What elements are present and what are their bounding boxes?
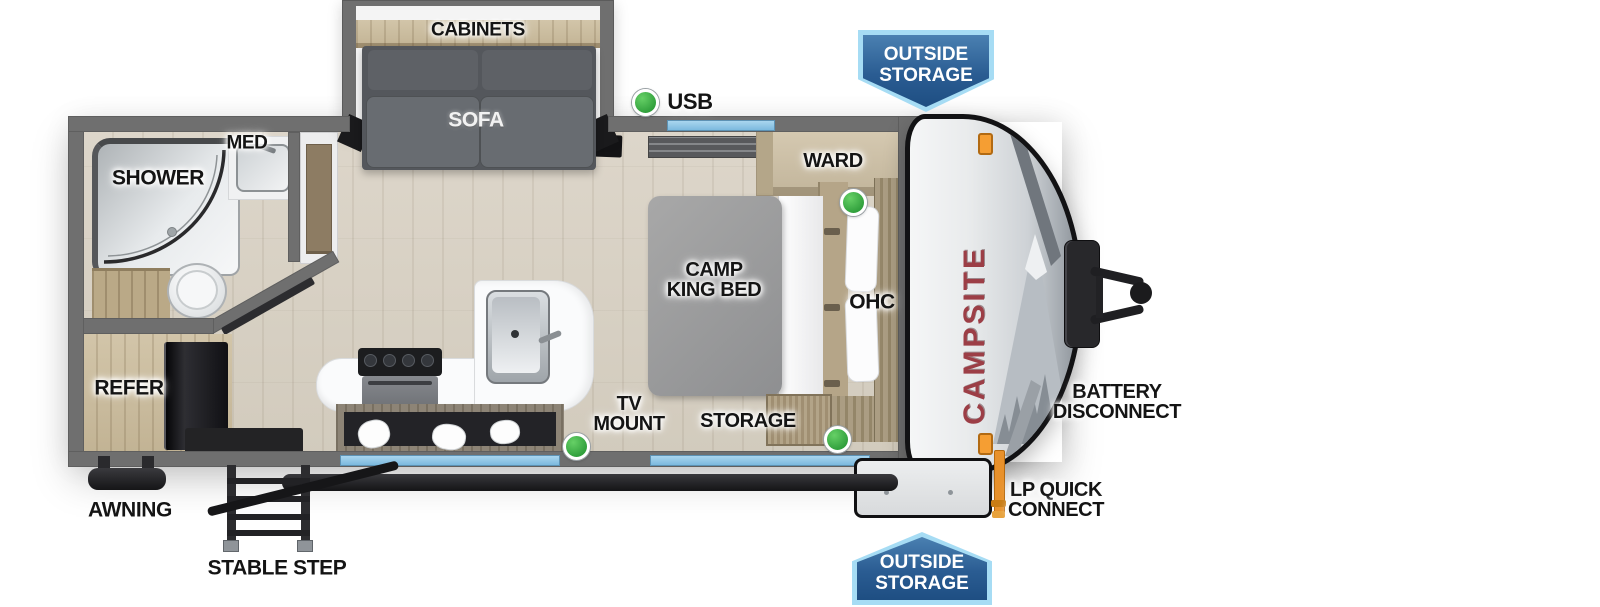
wall-top-left bbox=[68, 116, 350, 132]
usb-label: USB bbox=[667, 91, 712, 113]
battery-disconnect-label: BATTERYDISCONNECT bbox=[1053, 382, 1181, 422]
linen-drawers bbox=[306, 144, 332, 254]
usb-indicator-dot bbox=[632, 89, 659, 116]
ward-indicator-dot bbox=[840, 189, 867, 216]
compartment-screw-right bbox=[948, 490, 953, 495]
cabinets-label: CABINETS bbox=[431, 21, 525, 40]
step-foot-left bbox=[223, 540, 239, 552]
camp-king-bed-label: CAMPKING BED bbox=[667, 260, 762, 300]
tv-mount-indicator-dot bbox=[563, 433, 590, 460]
marker-light-bottom bbox=[978, 433, 993, 455]
window-top bbox=[667, 120, 775, 131]
sofa-seat-cushion-right bbox=[480, 96, 594, 168]
range-burner-1 bbox=[364, 354, 377, 367]
floorplan-stage: CAMPSITE OUTSIDESTORAGE OUTSIDESTORAGE bbox=[0, 0, 1600, 607]
range-burner-2 bbox=[383, 354, 396, 367]
refer-label: REFER bbox=[94, 378, 163, 399]
shower bbox=[92, 138, 240, 276]
awning-label: AWNING bbox=[88, 500, 172, 521]
range-burner-3 bbox=[402, 354, 415, 367]
brand-graphic-text: CAMPSITE bbox=[958, 161, 992, 425]
shower-label: SHOWER bbox=[112, 168, 204, 189]
sofa-back-cushion-right bbox=[482, 50, 592, 90]
bathroom-vanity bbox=[92, 268, 170, 325]
tongue-jack bbox=[1064, 240, 1100, 348]
sofa-label: SOFA bbox=[448, 110, 504, 131]
ward-label: WARD bbox=[803, 151, 863, 171]
sofa-seat-cushion-left bbox=[366, 96, 480, 168]
outside-storage-top-label: OUTSIDESTORAGE bbox=[879, 45, 973, 87]
bed-sheet bbox=[778, 196, 823, 396]
ohc-label: OHC bbox=[849, 292, 894, 313]
window-bottom-kitchen bbox=[340, 455, 560, 466]
sofa-back-cushion-left bbox=[368, 50, 478, 90]
toilet-seat bbox=[176, 270, 218, 310]
hitch-stem bbox=[1096, 276, 1103, 318]
tv-mount-label: TVMOUNT bbox=[593, 394, 664, 434]
step-rung-1 bbox=[227, 478, 310, 484]
underbed-indicator-dot bbox=[824, 426, 851, 453]
step-foot-right bbox=[297, 540, 313, 552]
outside-storage-bottom-label: OUTSIDESTORAGE bbox=[875, 553, 969, 595]
step-rung-4 bbox=[227, 530, 310, 536]
bed-divider-hinge-2 bbox=[824, 304, 840, 311]
storage-label: STORAGE bbox=[700, 411, 796, 431]
stable-step-label: STABLE STEP bbox=[208, 558, 347, 579]
bed-divider-hinge-1 bbox=[824, 228, 840, 235]
hitch-coupler-ball bbox=[1130, 282, 1152, 304]
lp-pipe-tip bbox=[992, 511, 1005, 518]
kitchen-sink-drain bbox=[511, 330, 519, 338]
bed-pillow-1 bbox=[845, 205, 880, 292]
bed-divider-hinge-3 bbox=[824, 380, 840, 387]
ac-vent bbox=[648, 136, 764, 158]
wall-left bbox=[68, 116, 84, 467]
med-label: MED bbox=[226, 134, 267, 153]
marker-light-top bbox=[978, 133, 993, 155]
window-bottom-bedroom bbox=[650, 455, 870, 466]
bathroom-lower-wall bbox=[68, 318, 214, 334]
range-burner-4 bbox=[421, 354, 434, 367]
lp-pipe-joint bbox=[991, 500, 1006, 507]
lp-quick-connect-label: LP QUICKCONNECT bbox=[1008, 480, 1104, 520]
awning-bar-main bbox=[282, 474, 898, 491]
bathroom-right-wall bbox=[288, 132, 300, 262]
oven-handle bbox=[368, 381, 432, 385]
awning-bar-left bbox=[88, 468, 166, 490]
step-rung-3 bbox=[227, 514, 310, 520]
